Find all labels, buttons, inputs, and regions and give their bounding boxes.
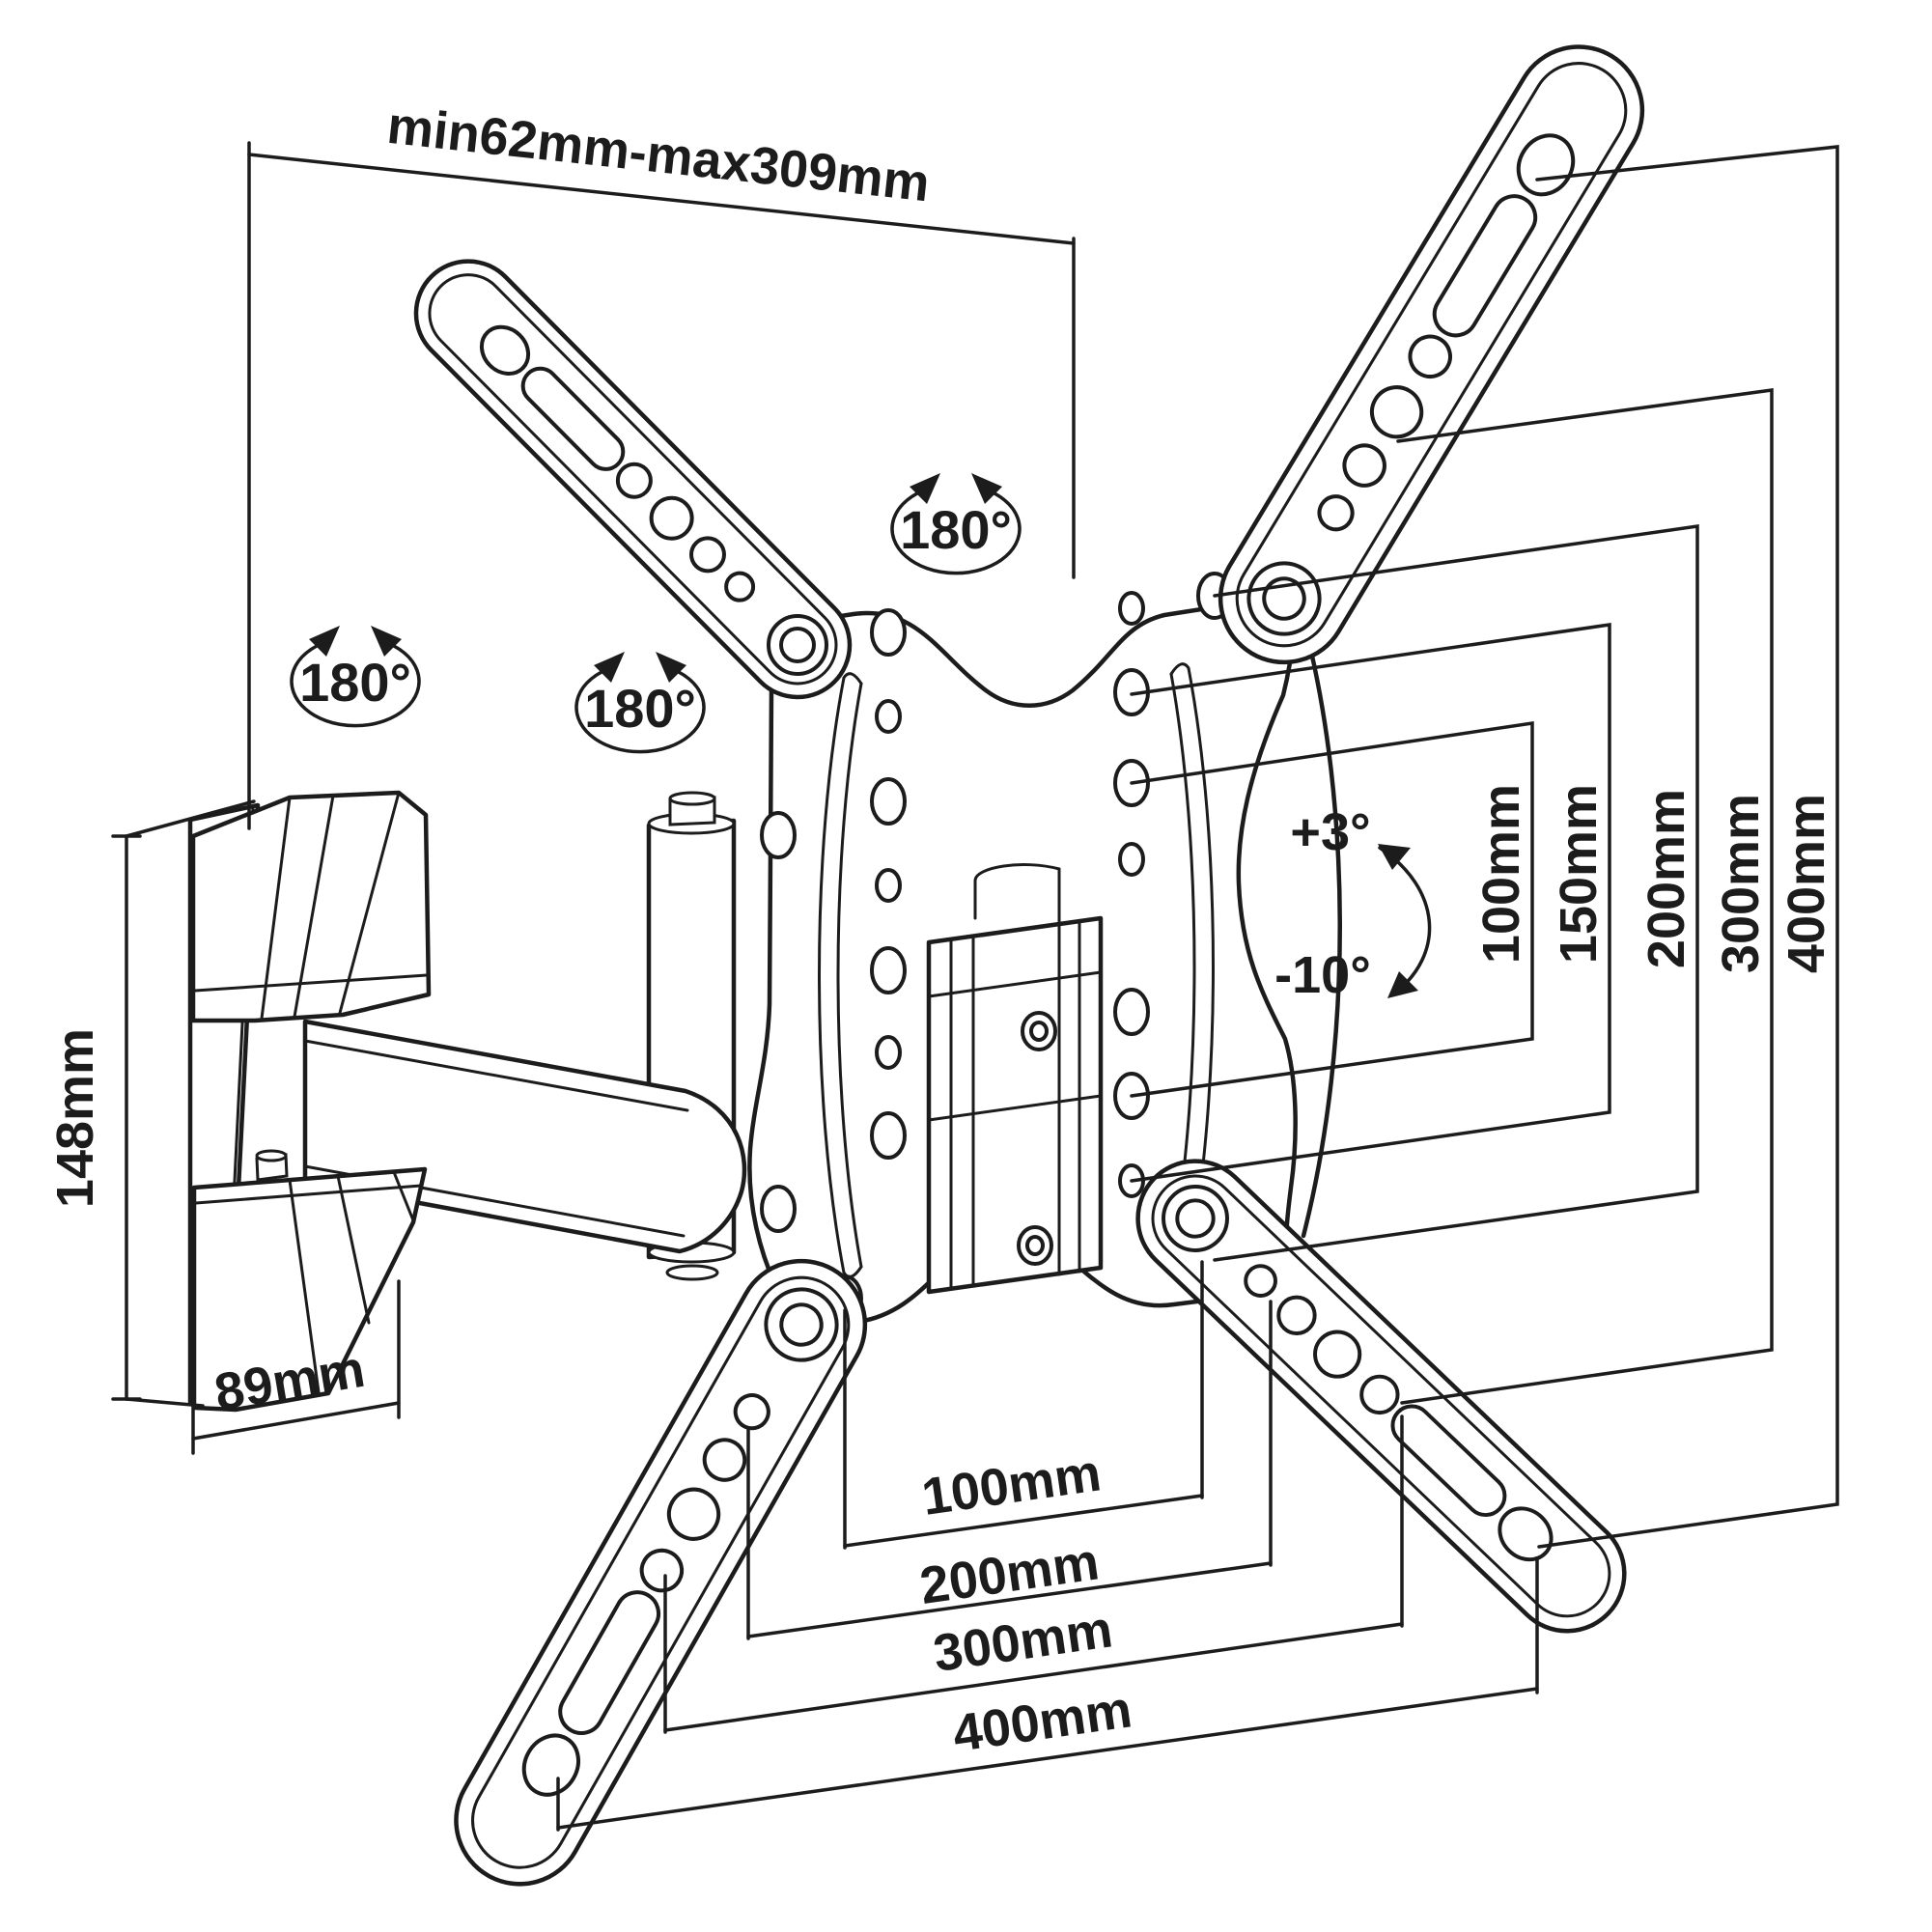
tilt-annotation: +3° -10° — [1274, 803, 1429, 1004]
vesa-hole — [1115, 990, 1148, 1034]
tilt-screw-bottom-inner — [1027, 1237, 1043, 1254]
bracket-height-label: 148mm — [46, 1028, 104, 1208]
vesa-vertical-label-100: 100mm — [1472, 784, 1530, 964]
tilt-down-label: -10° — [1274, 946, 1371, 1004]
vesa-hole — [762, 813, 795, 857]
tilt-arrow-up-icon — [1378, 844, 1411, 870]
arm-extension-label: min62mm-max309mm — [384, 97, 932, 213]
rotation-label: 180° — [299, 652, 411, 713]
diagram-canvas: min62mm-max309mm 180° 180° 180° 148mm 89… — [0, 0, 1932, 1932]
rotation-label: 180° — [584, 678, 696, 739]
rotation-badge-elbow: 180° — [576, 652, 704, 752]
vesa-hole — [1120, 593, 1143, 624]
wall-mount-technical-drawing: min62mm-max309mm 180° 180° 180° 148mm 89… — [0, 0, 1932, 1932]
vesa-hole — [877, 870, 900, 901]
rotation-badge-plate: 180° — [892, 473, 1020, 574]
vesa-hole — [872, 610, 905, 655]
vesa-horizontal-label-200: 200mm — [916, 1532, 1103, 1615]
pivot-cylinder-foot — [667, 1266, 717, 1279]
extension-arm-top-left — [395, 239, 872, 718]
extension-arm-bottom-right — [1114, 1137, 1648, 1655]
rotation-label: 180° — [900, 499, 1012, 560]
vesa-hole — [872, 1113, 905, 1158]
vesa-hole — [877, 701, 900, 732]
tilt-arc — [1380, 848, 1430, 994]
clamp-bolt-head — [257, 1151, 286, 1161]
tilt-screw-top-inner — [1031, 1022, 1047, 1040]
vesa-vertical-label-150: 150mm — [1550, 784, 1608, 964]
vesa-hole — [872, 948, 905, 993]
rotation-badge-wall: 180° — [292, 626, 419, 726]
rear-plate-edge — [1303, 628, 1340, 1236]
vesa-hole — [877, 1037, 900, 1068]
tilt-bracket — [929, 918, 1101, 1292]
pivot-nut-top — [670, 793, 714, 804]
articulating-arm-assembly — [190, 793, 744, 1410]
vesa-vertical-label-300: 300mm — [1712, 794, 1770, 973]
top-clamp-wedge — [193, 793, 429, 1021]
vesa-vertical-label-200: 200mm — [1638, 789, 1695, 968]
extension-arm-bottom-left — [434, 1238, 888, 1907]
tilt-up-label: +3° — [1290, 803, 1370, 861]
vesa-hole — [1120, 844, 1143, 875]
vesa-hole — [872, 779, 905, 824]
vesa-vertical-label-400: 400mm — [1778, 794, 1835, 973]
vesa-hole — [762, 1187, 795, 1231]
